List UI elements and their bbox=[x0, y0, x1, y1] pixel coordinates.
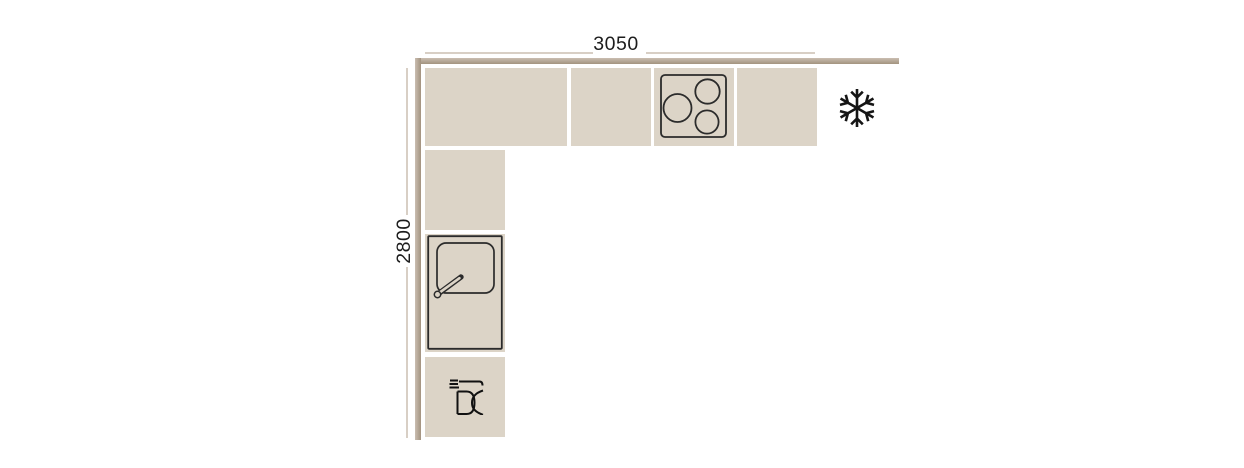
dimension-line-top-right-segment bbox=[646, 52, 815, 54]
base-cabinet-top-4 bbox=[737, 68, 817, 146]
base-cabinet-corner bbox=[425, 68, 567, 146]
snowflake-icon bbox=[836, 87, 878, 129]
dimension-width-label: 3050 bbox=[556, 34, 676, 54]
dimension-depth-label: 2800 bbox=[394, 181, 414, 301]
wall-left bbox=[415, 58, 421, 440]
dishwasher-cabinet bbox=[425, 357, 505, 437]
base-cabinet-left-1 bbox=[425, 150, 505, 230]
sink-with-faucet-icon bbox=[427, 235, 503, 350]
kitchen-floor-plan: 3050 2800 bbox=[0, 0, 1244, 468]
base-cabinet-top-2 bbox=[571, 68, 651, 146]
dimension-line-left-bottom-segment bbox=[406, 267, 408, 438]
dishwasher-icon bbox=[447, 377, 485, 415]
wall-top bbox=[415, 58, 899, 64]
sink-cabinet bbox=[425, 234, 505, 352]
cooktop-burners-icon bbox=[660, 74, 727, 138]
cooktop-cabinet bbox=[654, 68, 734, 146]
